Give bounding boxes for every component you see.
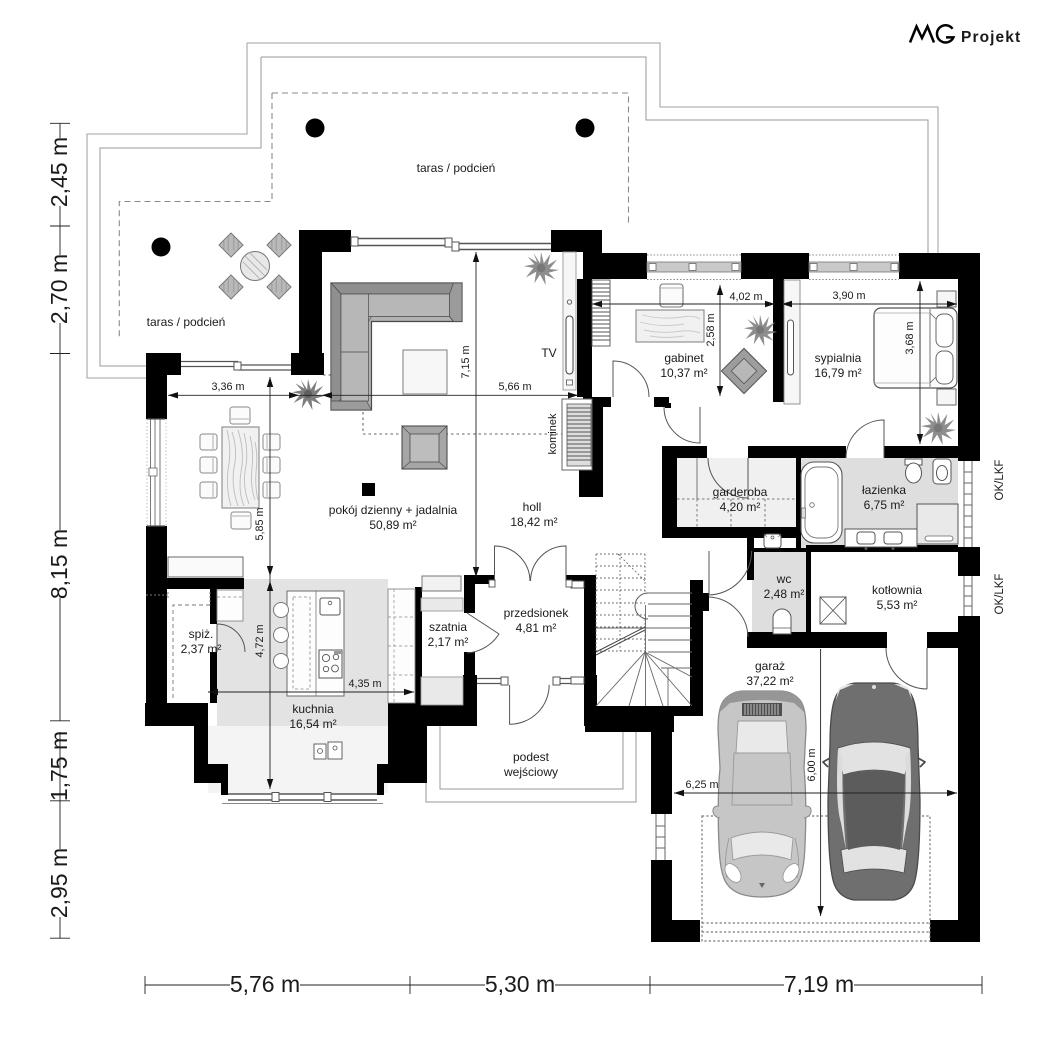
- svg-text:18,42 m²: 18,42 m²: [510, 515, 557, 529]
- svg-text:1,75 m: 1,75 m: [46, 731, 72, 801]
- svg-text:4,20 m²: 4,20 m²: [720, 500, 761, 514]
- svg-text:37,22 m²: 37,22 m²: [746, 674, 793, 688]
- svg-text:50,89 m²: 50,89 m²: [369, 518, 416, 532]
- svg-text:6,75 m²: 6,75 m²: [864, 498, 905, 512]
- svg-text:2,17 m²: 2,17 m²: [428, 635, 469, 649]
- svg-text:2,95 m: 2,95 m: [46, 848, 72, 918]
- svg-text:3,90 m: 3,90 m: [832, 290, 865, 302]
- svg-text:4,02 m: 4,02 m: [729, 291, 762, 303]
- svg-text:kominek: kominek: [547, 413, 559, 454]
- svg-text:TV: TV: [541, 346, 556, 360]
- svg-text:5,30 m: 5,30 m: [485, 971, 555, 997]
- svg-text:przedsionek: przedsionek: [504, 606, 570, 620]
- svg-text:2,70 m: 2,70 m: [46, 254, 72, 324]
- svg-text:garaż: garaż: [755, 659, 785, 673]
- svg-text:10,37 m²: 10,37 m²: [660, 366, 707, 380]
- svg-text:wc: wc: [776, 572, 792, 586]
- svg-text:5,85 m: 5,85 m: [254, 507, 266, 540]
- svg-text:4,72 m: 4,72 m: [254, 624, 266, 657]
- svg-text:3,36 m: 3,36 m: [211, 381, 244, 393]
- svg-text:kuchnia: kuchnia: [292, 702, 334, 716]
- svg-text:wejściowy: wejściowy: [503, 765, 558, 779]
- svg-text:5,66 m: 5,66 m: [498, 381, 531, 393]
- svg-text:7,15 m: 7,15 m: [460, 345, 472, 378]
- svg-text:6,25 m: 6,25 m: [685, 779, 718, 791]
- svg-text:łazienka: łazienka: [862, 483, 906, 497]
- svg-text:8,15 m: 8,15 m: [46, 529, 72, 599]
- svg-text:szatnia: szatnia: [429, 620, 467, 634]
- svg-text:sypialnia: sypialnia: [815, 351, 862, 365]
- svg-text:spiż.: spiż.: [189, 627, 214, 641]
- svg-text:16,54 m²: 16,54 m²: [289, 717, 336, 731]
- svg-text:7,19 m: 7,19 m: [784, 971, 854, 997]
- svg-text:16,79 m²: 16,79 m²: [814, 366, 861, 380]
- svg-text:3,68 m: 3,68 m: [904, 321, 916, 354]
- svg-text:4,81 m²: 4,81 m²: [516, 621, 557, 635]
- svg-text:gabinet: gabinet: [664, 351, 704, 365]
- svg-text:podest: podest: [513, 750, 550, 764]
- svg-text:pokój dzienny + jadalnia: pokój dzienny + jadalnia: [329, 503, 458, 517]
- svg-text:4,35 m: 4,35 m: [348, 678, 381, 690]
- svg-text:2,58 m: 2,58 m: [705, 313, 717, 346]
- svg-text:taras / podcień: taras / podcień: [417, 161, 496, 175]
- svg-text:taras / podcień: taras / podcień: [147, 315, 226, 329]
- svg-text:OK/LKF: OK/LKF: [994, 460, 1006, 501]
- svg-text:6,00 m: 6,00 m: [806, 748, 818, 781]
- svg-text:Projekt: Projekt: [961, 29, 1021, 46]
- svg-text:kotłownia: kotłownia: [872, 583, 922, 597]
- svg-text:5,76 m: 5,76 m: [230, 971, 300, 997]
- svg-text:garderoba: garderoba: [713, 485, 768, 499]
- svg-text:2,45 m: 2,45 m: [46, 137, 72, 207]
- svg-text:OK/LKF: OK/LKF: [994, 574, 1006, 615]
- svg-text:holl: holl: [523, 500, 542, 514]
- svg-text:5,53 m²: 5,53 m²: [877, 598, 918, 612]
- svg-text:2,48 m²: 2,48 m²: [764, 587, 805, 601]
- svg-text:2,37 m²: 2,37 m²: [181, 642, 222, 656]
